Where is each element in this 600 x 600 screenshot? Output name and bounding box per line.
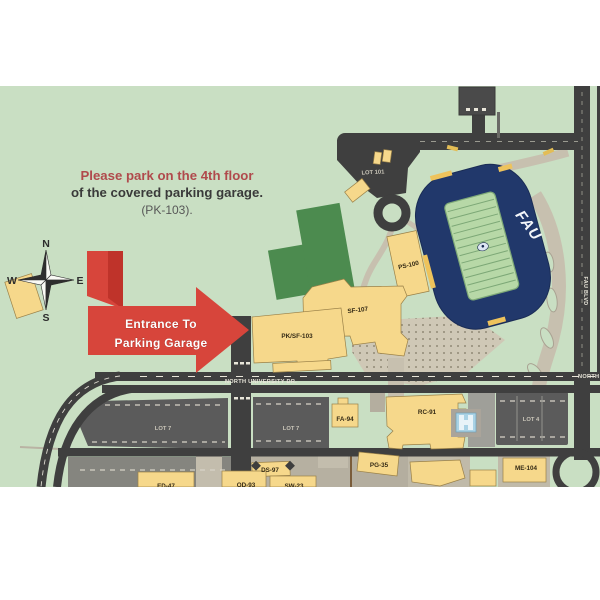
label-rc91: RC-91 (418, 409, 437, 416)
entrance-arrow-label-1: Entrance To (125, 317, 197, 331)
note-line-3: (PK-103). (141, 203, 192, 217)
label-fa94: FA-94 (336, 416, 354, 423)
road-south-service (58, 448, 600, 457)
label-north-university-dr: NORTH UNIVERSITY DR. (225, 379, 297, 385)
label-lot4: LOT 4 (523, 417, 540, 423)
bottom-margin (0, 487, 600, 600)
compass-west: W (7, 275, 17, 287)
rc91-pool (451, 409, 481, 437)
note-line-1: Please park on the 4th floor (81, 168, 254, 183)
label-pk-sf103: PK/SF-103 (281, 333, 313, 340)
compass-east: E (76, 275, 83, 287)
label-lot7-east: LOT 7 (283, 426, 299, 432)
label-fau-blvd: FAU BLVD (582, 277, 588, 306)
label-lot7-west: LOT 7 (155, 426, 171, 432)
label-me104: ME-104 (515, 465, 538, 472)
label-north-university-dr-east: NORTH UNIVERSITY DR. (578, 374, 600, 380)
parking-directions-map: FAU LOT 101 PS-100 SF-107 (0, 0, 600, 600)
top-margin (0, 0, 600, 86)
label-lot101: LOT 101 (361, 169, 385, 176)
note-line-2: of the covered parking garage. (71, 185, 263, 200)
compass-south: S (42, 312, 49, 324)
entrance-arrow-label-2: Parking Garage (115, 336, 208, 350)
label-ds97: DS-97 (261, 467, 279, 474)
compass-north: N (42, 238, 50, 250)
campus-map: FAU LOT 101 PS-100 SF-107 (0, 0, 600, 600)
label-pg35: PG-35 (370, 462, 389, 469)
